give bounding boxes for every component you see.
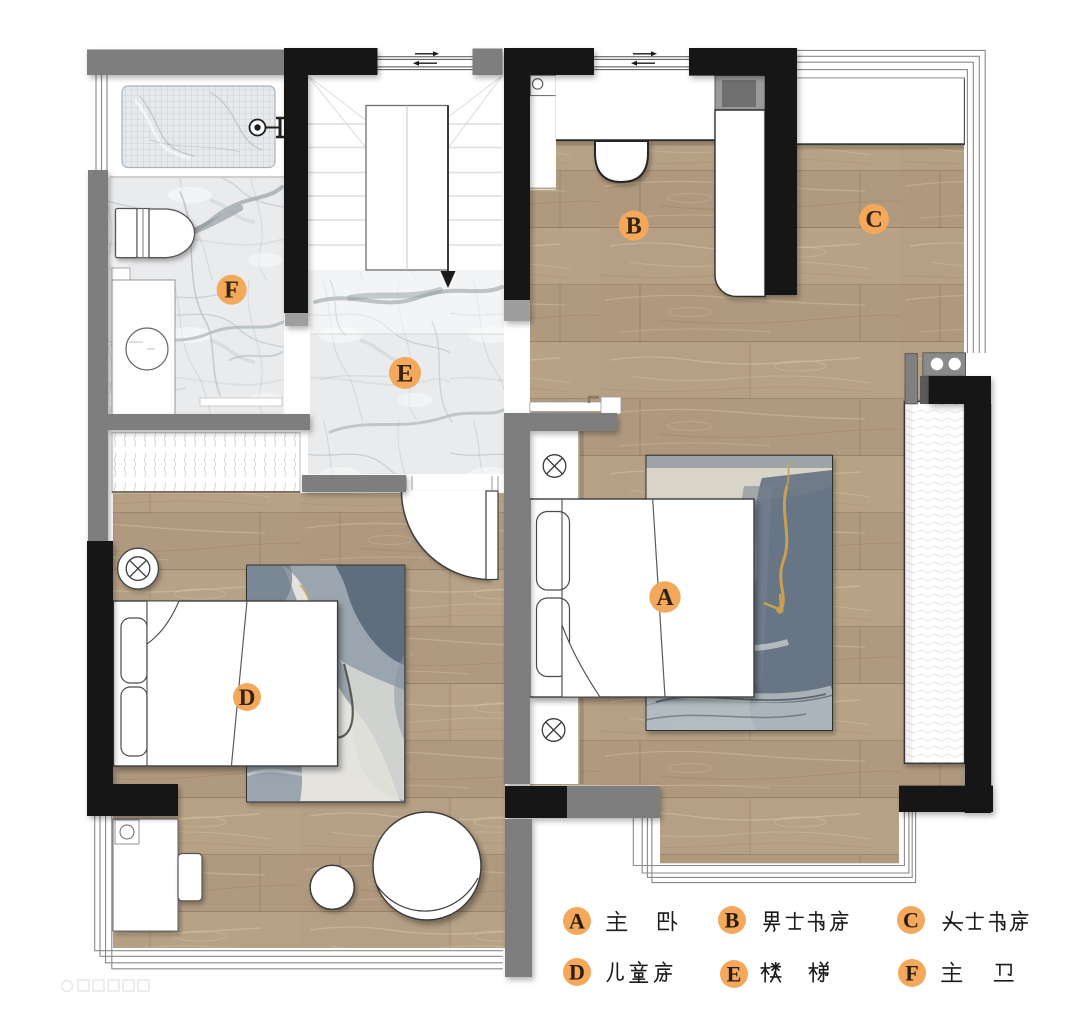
svg-text:F: F — [224, 278, 239, 304]
svg-text:C: C — [865, 207, 882, 233]
svg-text:B: B — [626, 214, 642, 240]
svg-text:C: C — [903, 908, 919, 933]
svg-text:B: B — [725, 908, 740, 933]
svg-text:D: D — [569, 960, 585, 985]
svg-text:F: F — [905, 961, 918, 986]
svg-text:E: E — [727, 962, 742, 987]
svg-text:A: A — [569, 909, 585, 934]
svg-text:E: E — [397, 361, 414, 388]
svg-text:A: A — [656, 585, 674, 611]
svg-text:D: D — [239, 685, 256, 710]
